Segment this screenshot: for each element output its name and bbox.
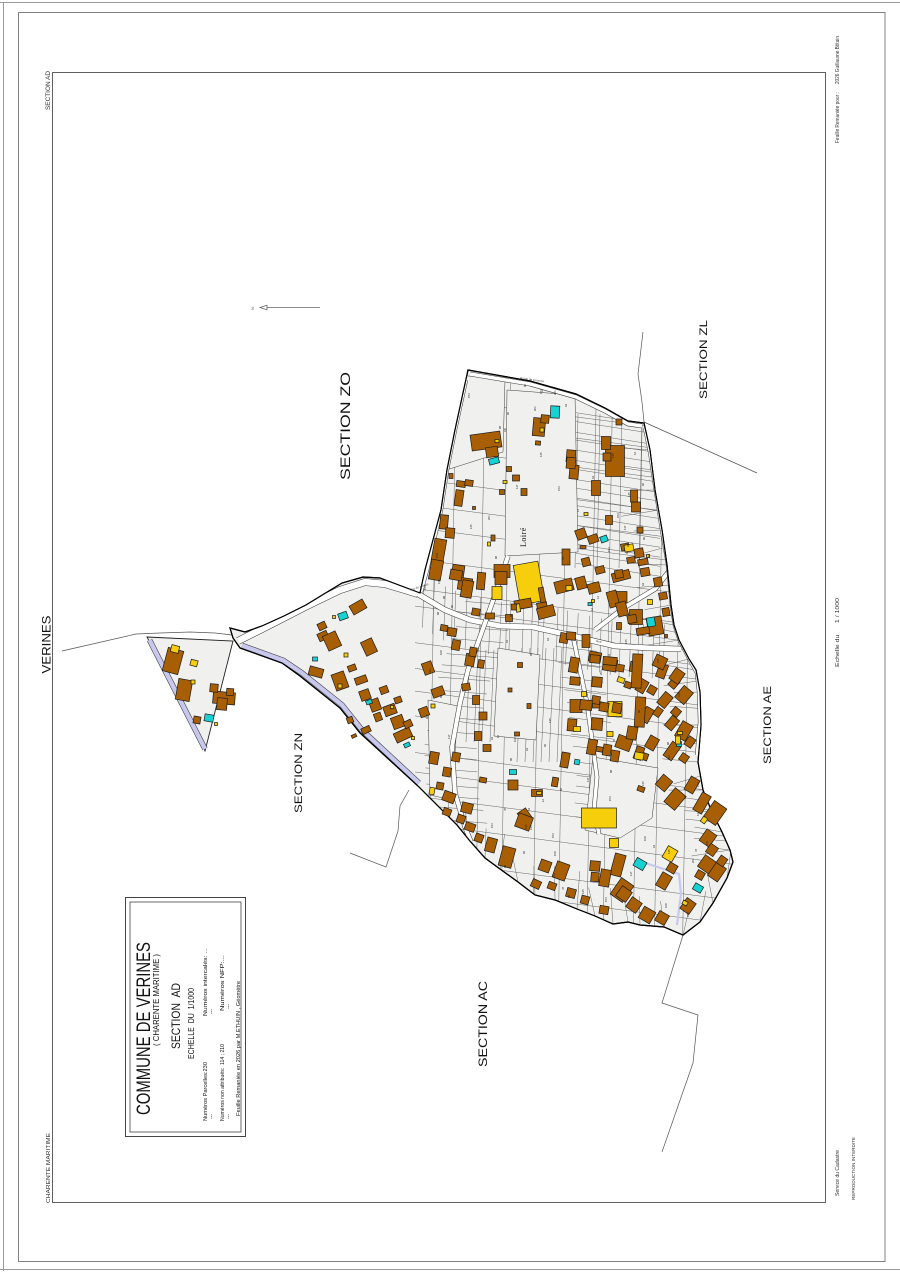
svg-text:64: 64 <box>505 639 509 643</box>
svg-text:Numéros NFP:...: Numéros NFP:... <box>220 954 226 1011</box>
svg-text:88: 88 <box>436 611 440 615</box>
svg-text:96: 96 <box>641 482 645 486</box>
svg-text:64: 64 <box>652 844 656 848</box>
svg-text:96: 96 <box>522 850 526 854</box>
svg-text:201: 201 <box>691 858 695 863</box>
svg-text:SECTION AE: SECTION AE <box>762 686 774 764</box>
svg-text:108: 108 <box>553 851 557 856</box>
svg-text:64: 64 <box>561 556 565 560</box>
svg-text:---: --- <box>226 1004 232 1009</box>
svg-text:201: 201 <box>553 390 557 395</box>
svg-text:135: 135 <box>539 452 543 457</box>
svg-text:108: 108 <box>435 553 439 558</box>
svg-text:88: 88 <box>637 709 641 713</box>
svg-text:---: --- <box>209 1114 215 1119</box>
svg-text:CHARENTE MARITIME: CHARENTE MARITIME <box>46 1133 52 1203</box>
svg-text:47: 47 <box>612 738 616 742</box>
svg-text:153: 153 <box>608 796 612 801</box>
svg-text:117: 117 <box>447 734 451 739</box>
svg-text:12: 12 <box>596 595 600 599</box>
svg-text:SECTION ZO: SECTION ZO <box>338 372 353 480</box>
svg-text:135: 135 <box>641 781 645 786</box>
svg-text:135: 135 <box>469 524 473 529</box>
svg-text:153: 153 <box>467 393 471 398</box>
svg-text:47: 47 <box>503 807 507 811</box>
svg-text:117: 117 <box>629 871 633 876</box>
svg-text:108: 108 <box>643 836 647 841</box>
svg-text:96: 96 <box>450 604 454 608</box>
svg-text:96: 96 <box>506 411 510 415</box>
svg-text:108: 108 <box>513 737 517 742</box>
svg-text:88: 88 <box>609 769 613 773</box>
svg-text:Numéros non attribués: 114 ;: Numéros non attribués: 114 ; 210 <box>220 1044 226 1121</box>
svg-text:64: 64 <box>641 582 645 586</box>
svg-text:64: 64 <box>591 475 595 479</box>
svg-text:96: 96 <box>567 894 571 898</box>
svg-text:( CHARENTE MARITIME ): ( CHARENTE MARITIME ) <box>152 954 161 1046</box>
svg-text:12: 12 <box>496 734 500 738</box>
svg-text:SECTION ZN: SECTION ZN <box>293 733 305 813</box>
svg-text:SECTION ZL: SECTION ZL <box>698 320 710 399</box>
svg-text:153: 153 <box>607 547 611 552</box>
svg-text:64: 64 <box>607 653 611 657</box>
svg-text:12: 12 <box>590 607 594 611</box>
svg-text:88: 88 <box>666 741 670 745</box>
svg-text:47: 47 <box>694 848 698 852</box>
svg-text:153: 153 <box>539 389 543 394</box>
svg-text:Feuille Remaniée pour : 2: Feuille Remaniée pour : 2026 Guillaume B… <box>835 36 841 143</box>
svg-text:135: 135 <box>529 825 533 830</box>
svg-text:153: 153 <box>667 755 671 760</box>
svg-text:117: 117 <box>515 484 519 489</box>
svg-text:135: 135 <box>548 718 552 723</box>
svg-text:96: 96 <box>543 743 547 747</box>
svg-text:88: 88 <box>494 555 498 559</box>
svg-text:12: 12 <box>696 812 700 816</box>
svg-text:---: --- <box>226 1114 232 1119</box>
svg-text:SECTION AD: SECTION AD <box>169 983 183 1049</box>
svg-text:64: 64 <box>564 403 568 407</box>
svg-text:153: 153 <box>604 897 608 902</box>
svg-text:88: 88 <box>439 694 443 698</box>
svg-text:VERINES: VERINES <box>40 616 54 674</box>
svg-text:108: 108 <box>677 692 681 697</box>
svg-text:88: 88 <box>442 595 446 599</box>
svg-text:201: 201 <box>487 515 491 520</box>
svg-text:Loiré: Loiré <box>519 527 528 547</box>
svg-text:12: 12 <box>576 508 580 512</box>
svg-text:135: 135 <box>611 453 615 458</box>
svg-text:64: 64 <box>683 795 687 799</box>
svg-text:96: 96 <box>523 383 527 387</box>
svg-text:201: 201 <box>428 668 432 673</box>
svg-text:REPRODUCTION INTERDITE: REPRODUCTION INTERDITE <box>851 1137 856 1200</box>
svg-text:Echelle du 1 / 1000: Echelle du 1 / 1000 <box>835 598 841 667</box>
svg-text:117: 117 <box>425 714 429 719</box>
svg-text:---: --- <box>209 1009 215 1014</box>
svg-text:201: 201 <box>599 670 603 675</box>
svg-text:96: 96 <box>559 787 563 791</box>
svg-text:88: 88 <box>509 613 513 617</box>
svg-text:153: 153 <box>490 823 494 828</box>
svg-text:64: 64 <box>647 553 651 557</box>
svg-text:N: N <box>250 307 255 310</box>
svg-text:201: 201 <box>533 406 537 411</box>
svg-text:12: 12 <box>633 451 637 455</box>
svg-text:135: 135 <box>524 824 528 829</box>
svg-text:ECHELLE DU 1/1000: ECHELLE DU 1/1000 <box>187 988 196 1059</box>
svg-text:SECTION AC: SECTION AC <box>478 981 490 1067</box>
svg-text:153: 153 <box>696 782 700 787</box>
svg-text:108: 108 <box>686 912 690 917</box>
svg-text:135: 135 <box>581 889 585 894</box>
svg-text:12: 12 <box>541 798 545 802</box>
svg-text:135: 135 <box>437 579 441 584</box>
svg-text:117: 117 <box>623 525 627 530</box>
svg-text:64: 64 <box>503 428 507 432</box>
svg-text:64: 64 <box>490 736 494 740</box>
svg-text:64: 64 <box>525 747 529 751</box>
svg-text:88: 88 <box>503 864 507 868</box>
svg-text:64: 64 <box>546 637 550 641</box>
svg-text:47: 47 <box>561 886 565 890</box>
svg-text:135: 135 <box>656 658 660 663</box>
svg-text:96: 96 <box>625 550 629 554</box>
svg-text:153: 153 <box>557 486 561 491</box>
svg-text:108: 108 <box>664 903 668 908</box>
svg-text:96: 96 <box>642 536 646 540</box>
svg-text:SECTION AD: SECTION AD <box>46 70 52 110</box>
svg-text:153: 153 <box>616 513 620 518</box>
svg-text:135: 135 <box>624 639 628 644</box>
svg-text:88: 88 <box>498 425 502 429</box>
svg-text:Numéros Parcelles:230: Numéros Parcelles:230 <box>203 1062 209 1121</box>
svg-text:64: 64 <box>527 807 531 811</box>
svg-text:153: 153 <box>551 833 555 838</box>
svg-text:117: 117 <box>586 777 590 782</box>
svg-text:88: 88 <box>509 757 513 761</box>
svg-text:135: 135 <box>627 492 631 497</box>
svg-text:153: 153 <box>552 873 556 878</box>
svg-text:108: 108 <box>439 650 443 655</box>
svg-text:Service du Cadastre: Service du Cadastre <box>835 1150 841 1196</box>
svg-text:108: 108 <box>705 841 709 846</box>
svg-text:88: 88 <box>529 652 533 656</box>
svg-text:Numéros intercalés: ...: Numéros intercalés: ... <box>203 947 209 1016</box>
svg-text:135: 135 <box>667 849 671 854</box>
svg-text:Feuille Remaniée en 2026 par M: Feuille Remaniée en 2026 par M.ETHUIN , … <box>236 981 242 1116</box>
svg-text:96: 96 <box>626 543 630 547</box>
